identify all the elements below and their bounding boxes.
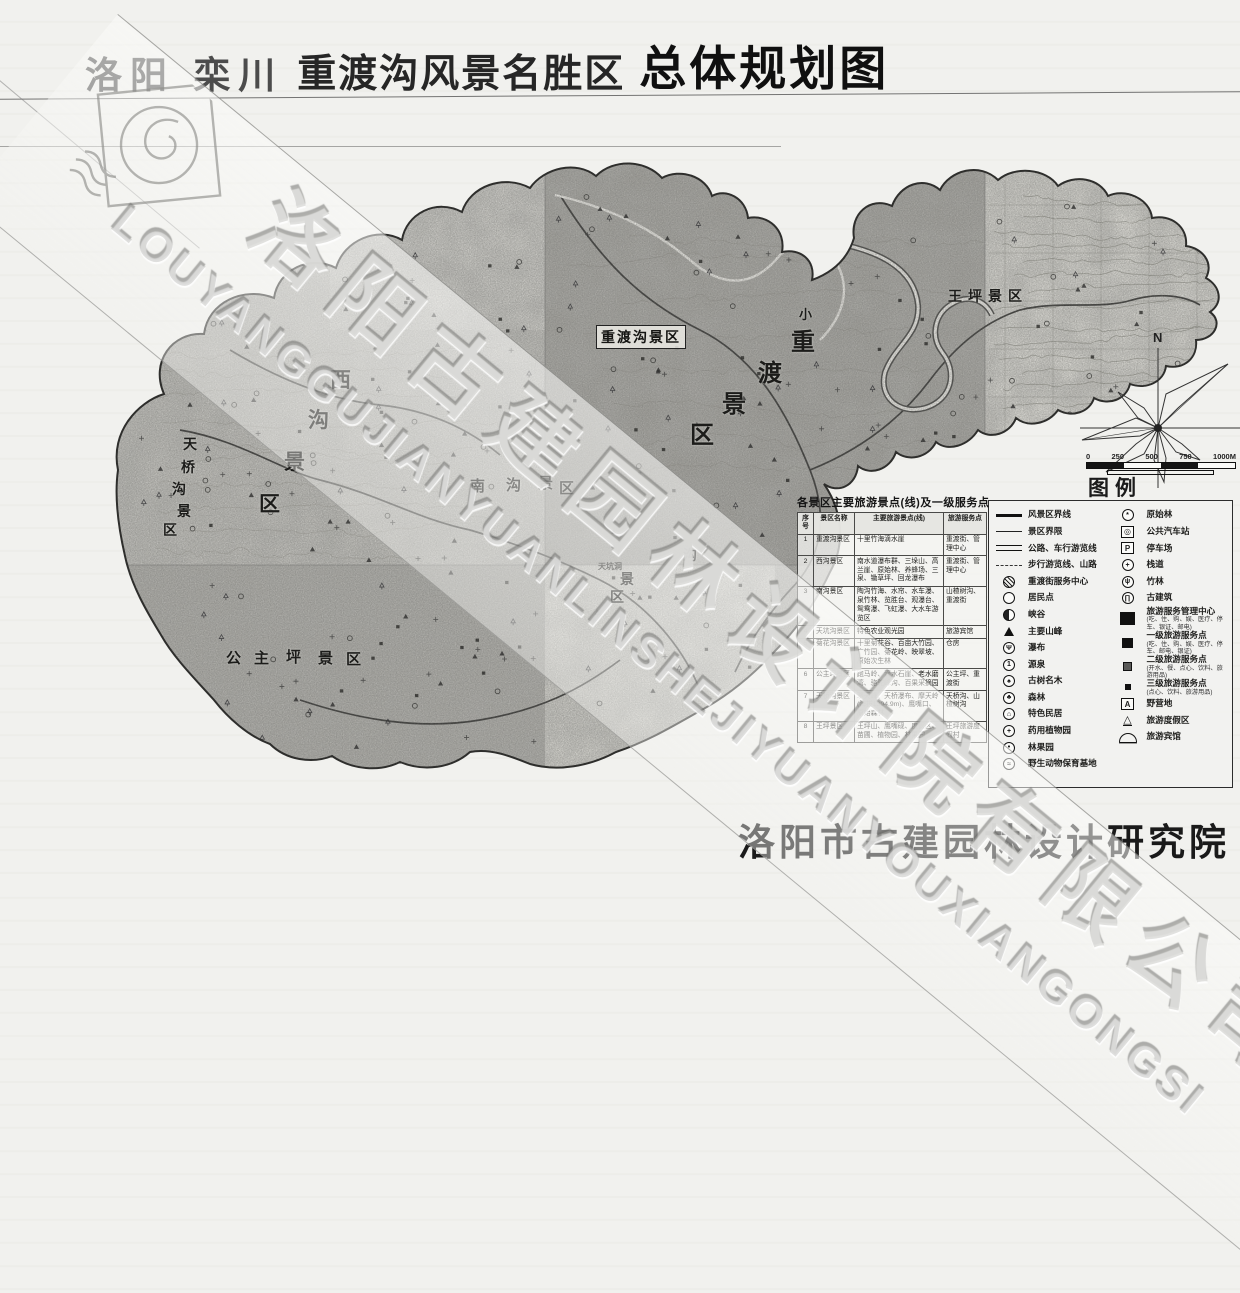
table-cell: 天桥沟、山楂树沟 (944, 691, 987, 721)
circle-one-icon: 1 (995, 659, 1023, 671)
triangle-icon (995, 627, 1023, 636)
zone-label-tianqiao: 景 (177, 501, 191, 521)
legend-item: ♠古树名木 (995, 673, 1110, 690)
table-cell: 7 (798, 691, 814, 721)
table-cell: 陶沟竹海、水帘、水车瀑、泉竹林、览胜台、观瀑台、鸳鸯瀑、飞虹瀑、大水车游览区 (855, 586, 944, 625)
sheet-title: 洛阳 栾川 重渡沟风景名胜区 总体规划图 (85, 30, 889, 99)
legend-item: ∏古建筑 (1114, 590, 1229, 607)
attractions-table: 序号景区名称主要旅游景点(线)旅游服务点 1重渡沟景区十里竹海滴水崖重渡街、管理… (797, 512, 987, 743)
legend-item: P停车场 (1114, 540, 1229, 557)
zone-label-nangou: 景 (538, 472, 553, 493)
table-cell: 重渡沟景区 (814, 534, 855, 556)
table-cell: 3 (798, 586, 814, 625)
table-cell: 十里菊花谷、百亩大竹园、广竹园、菊花岭、映翠坡、原始次生林 (855, 638, 944, 668)
zone-label-west: 西 (330, 364, 351, 394)
title-scenic-area: 重渡沟风景名胜区 (297, 43, 625, 99)
table-header-cell: 主要旅游景点(线) (855, 513, 944, 535)
table-row: 5菊花沟景区十里菊花谷、百亩大竹园、广竹园、菊花岭、映翠坡、原始次生林仓房 (798, 638, 987, 668)
legend-item-label: 二级旅游服务点(开水、餐、点心、饮料、旅游用品) (1147, 655, 1229, 679)
zone-label-gzp: 主 (254, 647, 269, 668)
legend-item: 重渡街服务中心 (995, 573, 1110, 590)
legend-item: A野营地 (1114, 696, 1229, 713)
scanned-plan-sheet: { "title": { "prefix": "洛阳 栾川", "name": … (0, 0, 1240, 876)
line-thick-icon (995, 514, 1023, 517)
circle-temple-icon: ∏ (1114, 592, 1142, 604)
table-cell: 山楂树沟、重渡街 (944, 586, 987, 625)
legend-item: +栈道 (1114, 557, 1229, 574)
legend-item: 峡谷 (995, 607, 1110, 624)
circle-herb-icon: + (995, 725, 1023, 737)
legend-item-label: 古树名木 (1028, 676, 1062, 686)
legend-item: 景区界限 (995, 524, 1110, 541)
table-cell: 跑马岭、滴水石崖、老水磨湾、骆驼峰沟、百果采摘园 (855, 669, 944, 691)
dome-icon (1114, 733, 1142, 742)
table-cell: 5 (798, 638, 814, 668)
square-a-icon: A (1114, 698, 1142, 710)
legend-item: ◎公共汽车站 (1114, 524, 1229, 541)
circle-bamboo-icon: ψ (1114, 576, 1142, 588)
legend-item: 步行游览线、山路 (995, 557, 1110, 574)
circle-forest-icon: ♣ (995, 692, 1023, 704)
zone-label-nangou: 区 (559, 477, 574, 498)
line-double-icon (995, 545, 1023, 551)
legend-item-label: 公共汽车站 (1147, 527, 1190, 537)
zone-label-tianqiao: 桥 (181, 457, 195, 477)
table-cell: 南沟景区 (814, 586, 855, 625)
square-p-icon: P (1114, 542, 1142, 554)
legend-item: ψ竹林 (1114, 573, 1229, 590)
legend-item: 旅游服务管理中心(吃、住、购、娱、医疗、停车、银证、邮电) (1114, 607, 1229, 631)
legend-item-label: 特色民居 (1028, 709, 1062, 719)
table-row: 8王坪景区王坪山、鹰嘴砚、度假区、苗圃、植物园、林果园王坪旅游度假村 (798, 721, 987, 743)
table-cell: 天桥沟景区 (814, 691, 855, 721)
legend-item-label: 景区界限 (1028, 527, 1062, 537)
legend-item-label: 林果园 (1028, 743, 1054, 753)
circle-open-icon (995, 592, 1023, 604)
compass-north-label: N (1153, 330, 1162, 345)
zone-label-big: 景 (722, 384, 746, 419)
zone-label-tianqiao: 沟 (172, 479, 186, 499)
legend-item-label: 峡谷 (1028, 610, 1045, 620)
zone-label-gzp: 区 (346, 648, 361, 669)
table-cell: 特色农业观光园 (855, 626, 944, 639)
zone-label-big: 重 (791, 322, 815, 357)
table-row: 6公主坪景区跑马岭、滴水石崖、老水磨湾、骆驼峰沟、百果采摘园公主坪、重渡街 (798, 669, 987, 691)
legend-item-label: 源泉 (1028, 660, 1045, 670)
table-cell: 王坪山、鹰嘴砚、度假区、苗圃、植物园、林果园 (855, 721, 944, 743)
circle-hatched-icon (995, 576, 1023, 588)
legend-item: ≈野生动物保育基地 (995, 756, 1110, 773)
zone-label-t_box: 重渡沟景区 (596, 325, 686, 349)
table-header-cell: 旅游服务点 (944, 513, 987, 535)
legend-item: 公路、车行游览线 (995, 540, 1110, 557)
legend-left-column: 风景区界线景区界限公路、车行游览线步行游览线、山路重渡街服务中心居民点峡谷主要山… (995, 507, 1110, 783)
table-cell: 十里竹海滴水崖 (855, 534, 944, 556)
zone-label-gzp: 坪 (286, 646, 301, 667)
zone-label-tkd: 天坑洞 (598, 561, 622, 572)
attractions-table-panel: 各景区主要旅游景点(线)及一级服务点 序号景区名称主要旅游景点(线)旅游服务点 … (797, 494, 987, 743)
legend-item: Ψ瀑布 (995, 640, 1110, 657)
legend-item: ⌂特色民居 (995, 706, 1110, 723)
table-cell: 天坑沟景区 (814, 626, 855, 639)
table-cell: 8 (798, 721, 814, 743)
zone-label-big: 渡 (758, 353, 782, 388)
zone-label-tk: 沟 (683, 545, 697, 565)
legend-right-column: *原始林◎公共汽车站P停车场+栈道ψ竹林∏古建筑旅游服务管理中心(吃、住、购、娱… (1114, 507, 1229, 783)
legend-item-label: 重渡街服务中心 (1028, 577, 1088, 587)
legend-item: *原始林 (1114, 507, 1229, 524)
zone-label-wp: 王 (948, 286, 962, 306)
circle-waterfall-icon: Ψ (995, 642, 1023, 654)
table-cell: 1 (798, 534, 814, 556)
legend-item-label: 步行游览线、山路 (1028, 560, 1097, 570)
legend-item: 三级旅游服务点(点心、饮料、旅游用品) (1114, 679, 1229, 696)
table-cell: 擎天峰、天桥瀑布、摩天岭(海拔1394.9m)、鹰嘴口、原始森林 (855, 691, 944, 721)
legend-item: 二级旅游服务点(开水、餐、点心、饮料、旅游用品) (1114, 655, 1229, 679)
legend-item: 一级旅游服务点(吃、住、购、娱、医疗、停车、邮电、银证) (1114, 631, 1229, 655)
legend-item-label: 旅游度假区 (1147, 716, 1190, 726)
legend-item: 居民点 (995, 590, 1110, 607)
zone-label-big: 区 (690, 415, 714, 450)
legend: 风景区界线景区界限公路、车行游览线步行游览线、山路重渡街服务中心居民点峡谷主要山… (988, 500, 1233, 788)
zone-label-nangou: 沟 (506, 474, 521, 495)
table-cell: 菊花沟景区 (814, 638, 855, 668)
table-header-cell: 景区名称 (814, 513, 855, 535)
legend-item-note: (点心、饮料、旅游用品) (1147, 689, 1213, 696)
table-cell: 公主坪景区 (814, 669, 855, 691)
legend-item-note: (吃、住、购、娱、医疗、停车、邮电、银证) (1147, 641, 1229, 655)
circle-house-icon: ⌂ (995, 708, 1023, 720)
table-cell: 旅游宾馆 (944, 626, 987, 639)
table-cell: 南水道瀑布群、三垛山、高兰崖、原始林、养蜂场、三泉、锄草坪、回龙瀑布 (855, 556, 944, 586)
legend-item-label: 原始林 (1147, 510, 1173, 520)
table-cell: 重渡街、管理中心 (944, 556, 987, 586)
title-region: 洛阳 栾川 (85, 45, 283, 99)
legend-item-label: 停车场 (1147, 544, 1173, 554)
table-row: 7天桥沟景区擎天峰、天桥瀑布、摩天岭(海拔1394.9m)、鹰嘴口、原始森林天桥… (798, 691, 987, 721)
legend-item-label: 竹林 (1147, 577, 1164, 587)
zone-label-gzp: 景 (318, 647, 333, 668)
table-cell: 王坪旅游度假村 (944, 721, 987, 743)
scale-tick: 500 (1145, 452, 1158, 461)
zone-label-tianqiao: 天 (183, 434, 197, 454)
sq-xl-icon (1114, 612, 1142, 625)
legend-item: ♣森林 (995, 690, 1110, 707)
zone-label-tianqiao: 区 (163, 520, 177, 540)
table-cell: 4 (798, 626, 814, 639)
sq-m-icon (1114, 662, 1142, 671)
scale-tick: 250 (1112, 452, 1125, 461)
legend-item-note: (吃、住、购、娱、医疗、停车、银证、邮电) (1147, 616, 1229, 630)
zone-label-west: 景 (284, 446, 305, 476)
line-thin-icon (995, 531, 1023, 532)
zone-label-west: 沟 (308, 404, 329, 434)
table-row: 2西沟景区南水道瀑布群、三垛山、高兰崖、原始林、养蜂场、三泉、锄草坪、回龙瀑布重… (798, 556, 987, 586)
legend-item-label: 三级旅游服务点(点心、饮料、旅游用品) (1147, 679, 1213, 696)
legend-item-label: 旅游宾馆 (1147, 732, 1181, 742)
circle-cross-icon: + (1114, 559, 1142, 571)
scale-tick: 1000M (1213, 452, 1236, 461)
legend-item-label: 森林 (1028, 693, 1045, 703)
legend-item-label: 居民点 (1028, 593, 1054, 603)
legend-item-label: 公路、车行游览线 (1028, 544, 1097, 554)
legend-item-label: 风景区界线 (1028, 510, 1071, 520)
table-row: 3南沟景区陶沟竹海、水帘、水车瀑、泉竹林、览胜台、观瀑台、鸳鸯瀑、飞虹瀑、大水车… (798, 586, 987, 625)
zone-label-west: 区 (259, 488, 280, 518)
zone-label-wp: 坪 (968, 286, 982, 306)
zone-label-wp: 区 (1008, 286, 1022, 306)
table-header-cell: 序号 (798, 513, 814, 535)
table-cell: 王坪景区 (814, 721, 855, 743)
zone-label-wp: 景 (988, 286, 1002, 306)
circle-tree-icon: ♠ (995, 675, 1023, 687)
scale-tick: 0 (1086, 452, 1090, 461)
legend-item: 旅游宾馆 (1114, 729, 1229, 746)
table-cell: 公主坪、重渡街 (944, 669, 987, 691)
zone-label-gzp: 公 (226, 647, 241, 668)
zone-label-tk: 区 (610, 587, 624, 607)
attractions-table-title: 各景区主要旅游景点(线)及一级服务点 (797, 494, 987, 510)
table-cell: 重渡街、管理中心 (944, 534, 987, 556)
legend-item-label: 古建筑 (1147, 593, 1173, 603)
sq-s-icon (1114, 684, 1142, 690)
legend-item-label: 主要山峰 (1028, 627, 1062, 637)
title-plan-type: 总体规划图 (639, 30, 889, 99)
legend-item-label: 一级旅游服务点(吃、住、购、娱、医疗、停车、邮电、银证) (1147, 631, 1229, 655)
legend-item: △旅游度假区 (1114, 713, 1229, 730)
table-row: 1重渡沟景区十里竹海滴水崖重渡街、管理中心 (798, 534, 987, 556)
table-header-row: 序号景区名称主要旅游景点(线)旅游服务点 (798, 513, 987, 535)
legend-item: 风景区界线 (995, 507, 1110, 524)
zone-label-xiao: 小 (799, 304, 812, 323)
table-cell: 2 (798, 556, 814, 586)
sq-l-icon (1114, 638, 1142, 648)
line-dashed-icon (995, 565, 1023, 566)
scale-tick-labels: 02505007501000M (1086, 452, 1236, 461)
zone-label-tk: 景 (620, 569, 634, 589)
legend-item-label: 旅游服务管理中心(吃、住、购、娱、医疗、停车、银证、邮电) (1147, 607, 1229, 631)
tent-icon: △ (1114, 716, 1142, 726)
legend-item-label: 药用植物园 (1028, 726, 1071, 736)
table-cell: 6 (798, 669, 814, 691)
legend-item: +药用植物园 (995, 723, 1110, 740)
publisher-name: 洛阳市古建园林设计研究院 (738, 812, 1230, 866)
legend-item-label: 野生动物保育基地 (1028, 759, 1097, 769)
legend-item: 1源泉 (995, 656, 1110, 673)
legend-title: 图例 (1088, 472, 1142, 502)
table-cell: 仓房 (944, 638, 987, 668)
table-cell: 西沟景区 (814, 556, 855, 586)
legend-item-note: (开水、餐、点心、饮料、旅游用品) (1147, 665, 1229, 679)
legend-item-label: 瀑布 (1028, 643, 1045, 653)
legend-item-label: 栈道 (1147, 560, 1164, 570)
legend-item: •林果园 (995, 739, 1110, 756)
circle-half-icon (995, 609, 1023, 621)
legend-item-label: 野营地 (1147, 699, 1173, 709)
square-bus-icon: ◎ (1114, 526, 1142, 538)
circle-animal-icon: ≈ (995, 758, 1023, 770)
table-row: 4天坑沟景区特色农业观光园旅游宾馆 (798, 626, 987, 639)
circle-fruit-icon: • (995, 742, 1023, 754)
zone-label-nangou: 南 (470, 475, 485, 496)
scale-tick: 750 (1179, 452, 1192, 461)
circle-pforest-icon: * (1114, 509, 1142, 521)
scale-bar-segments (1086, 462, 1236, 469)
legend-item: 主要山峰 (995, 623, 1110, 640)
